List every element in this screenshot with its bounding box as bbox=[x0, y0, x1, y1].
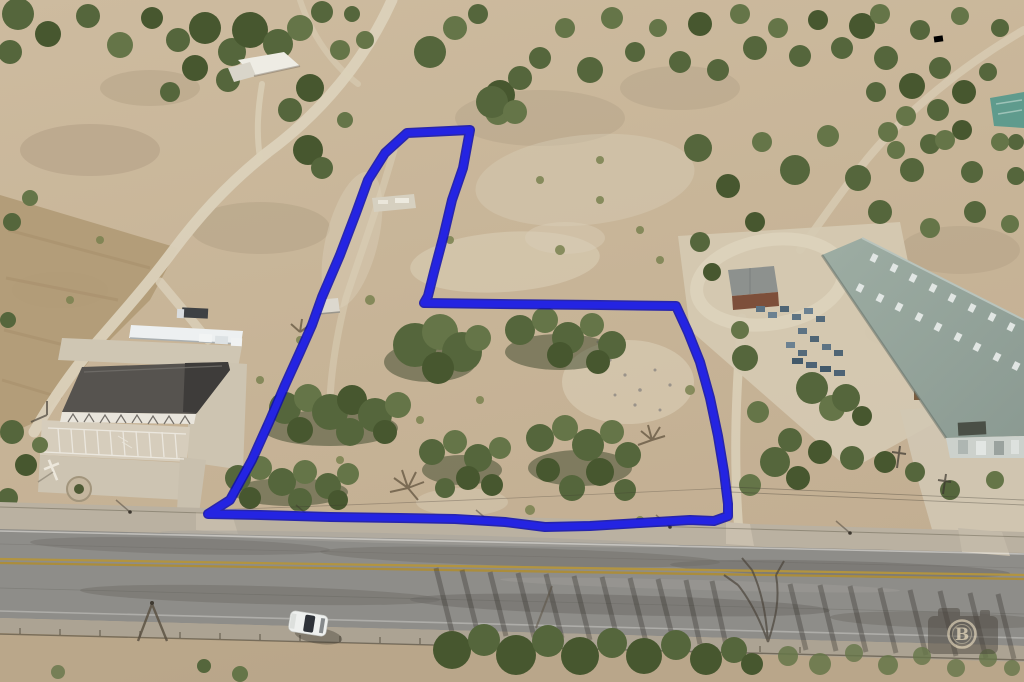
aerial-photo: B bbox=[0, 0, 1024, 682]
storage-shed bbox=[728, 266, 779, 310]
dumpster bbox=[958, 421, 987, 435]
aerial-photo-stage: B bbox=[0, 0, 1024, 682]
box-truck bbox=[182, 307, 208, 318]
driveway-apron bbox=[726, 522, 754, 546]
watermark-letter: B bbox=[955, 625, 969, 645]
distant-vehicle bbox=[934, 35, 944, 42]
church-porch-fascia bbox=[60, 412, 196, 424]
